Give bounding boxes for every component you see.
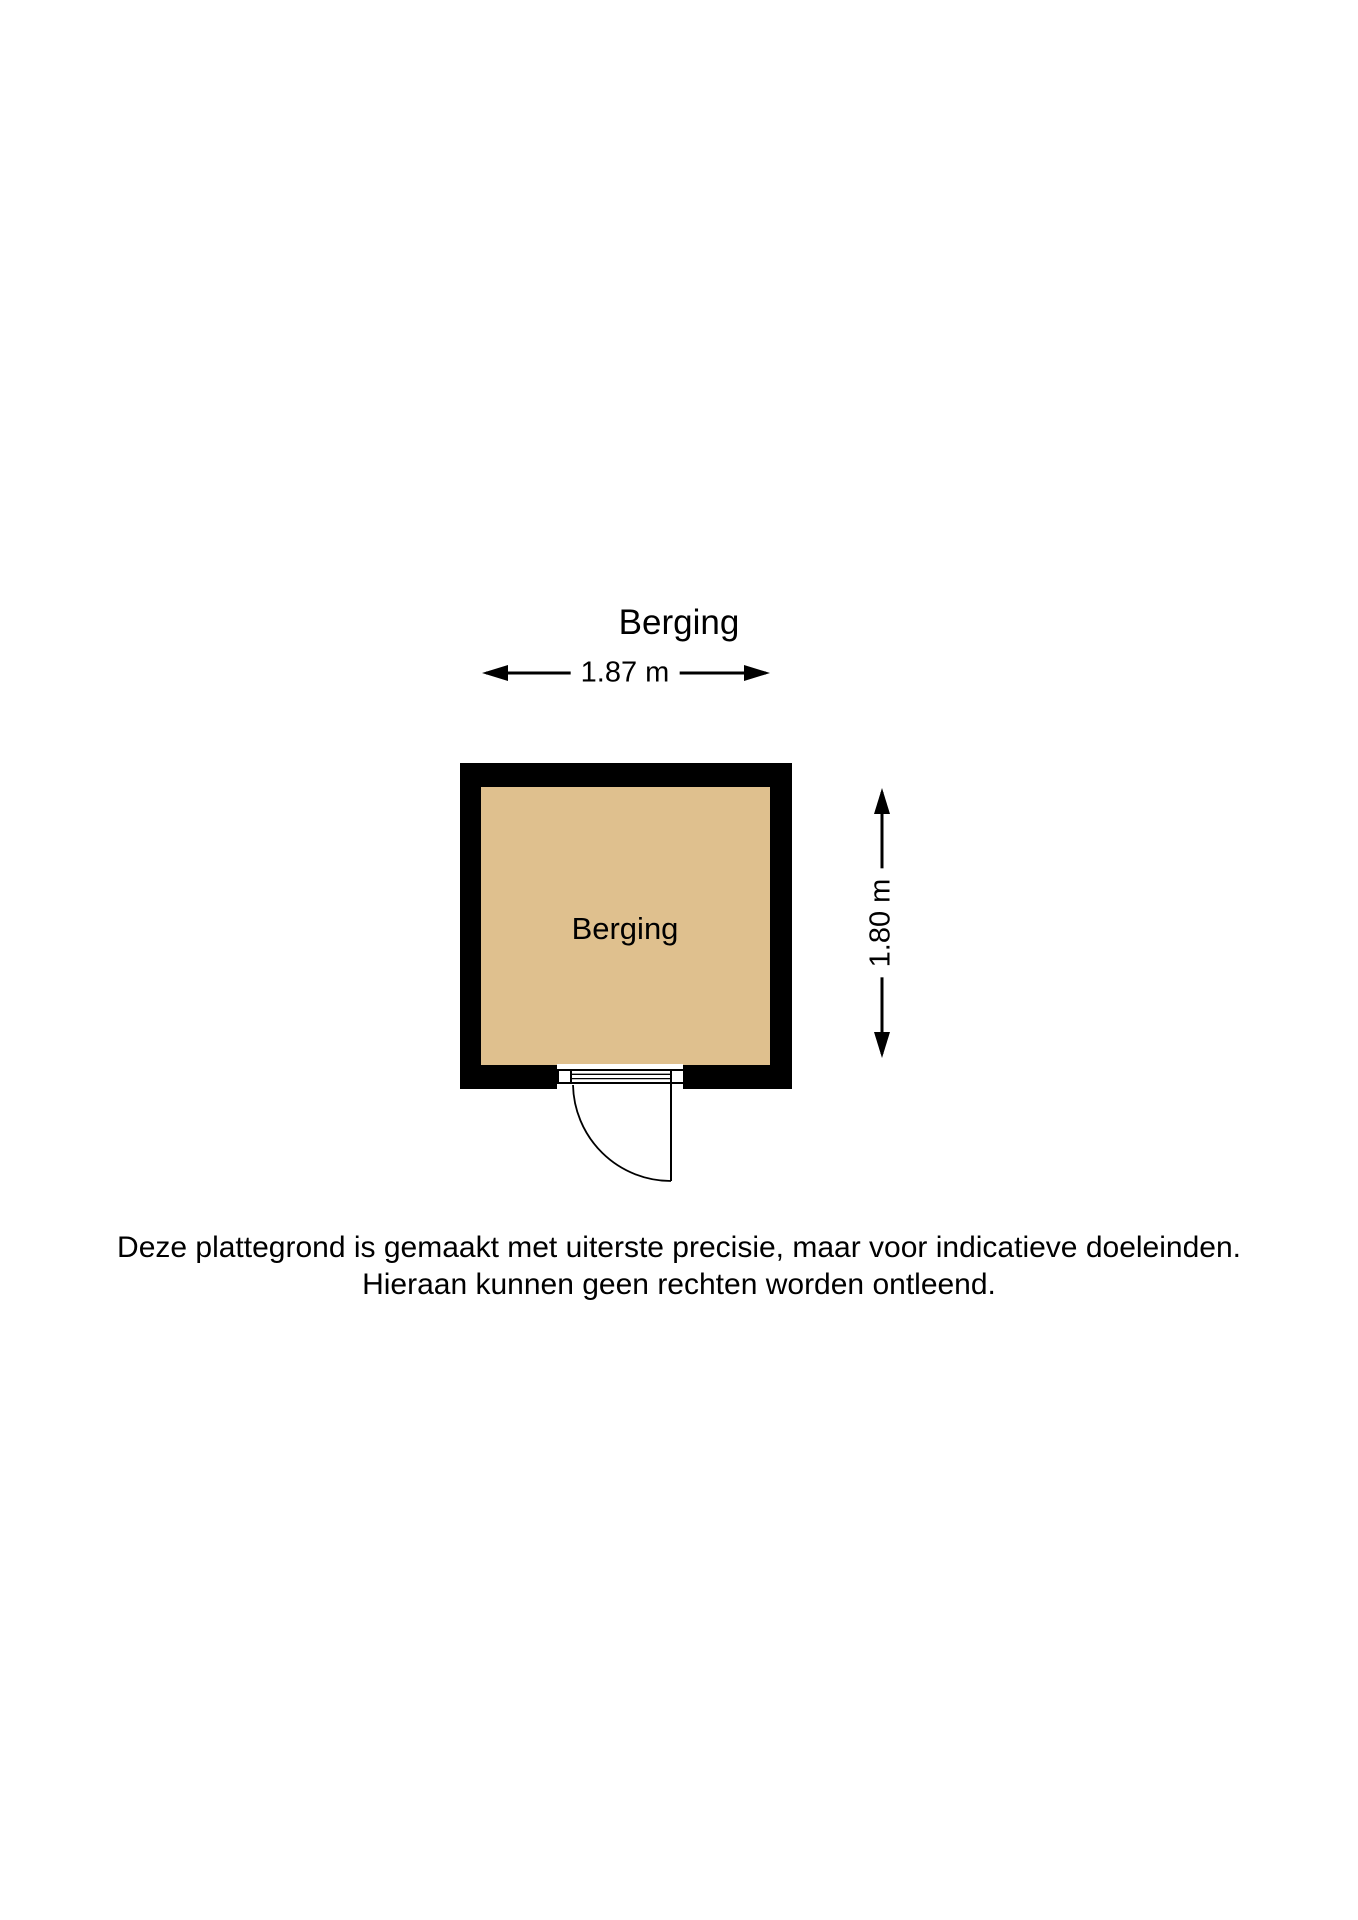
door-jamb-left	[558, 1070, 571, 1083]
door-threshold	[571, 1070, 671, 1083]
door-swing-arc	[573, 1085, 671, 1181]
arrow-right-icon	[744, 665, 770, 681]
disclaimer-line-2: Hieraan kunnen geen rechten worden ontle…	[0, 1266, 1358, 1303]
arrow-left-icon	[482, 665, 508, 681]
width-dimension-label: 1.87 m	[571, 657, 680, 690]
arrow-down-icon	[874, 1032, 890, 1058]
room-label: Berging	[572, 911, 679, 947]
floorplan-drawing	[0, 0, 1358, 1920]
disclaimer: Deze plattegrond is gemaakt met uiterste…	[0, 1229, 1358, 1303]
plan-title: Berging	[0, 603, 1358, 643]
door-jamb-right	[671, 1070, 684, 1083]
arrow-up-icon	[874, 788, 890, 814]
disclaimer-line-1: Deze plattegrond is gemaakt met uiterste…	[0, 1229, 1358, 1266]
height-dimension-label: 1.80 m	[865, 869, 898, 978]
